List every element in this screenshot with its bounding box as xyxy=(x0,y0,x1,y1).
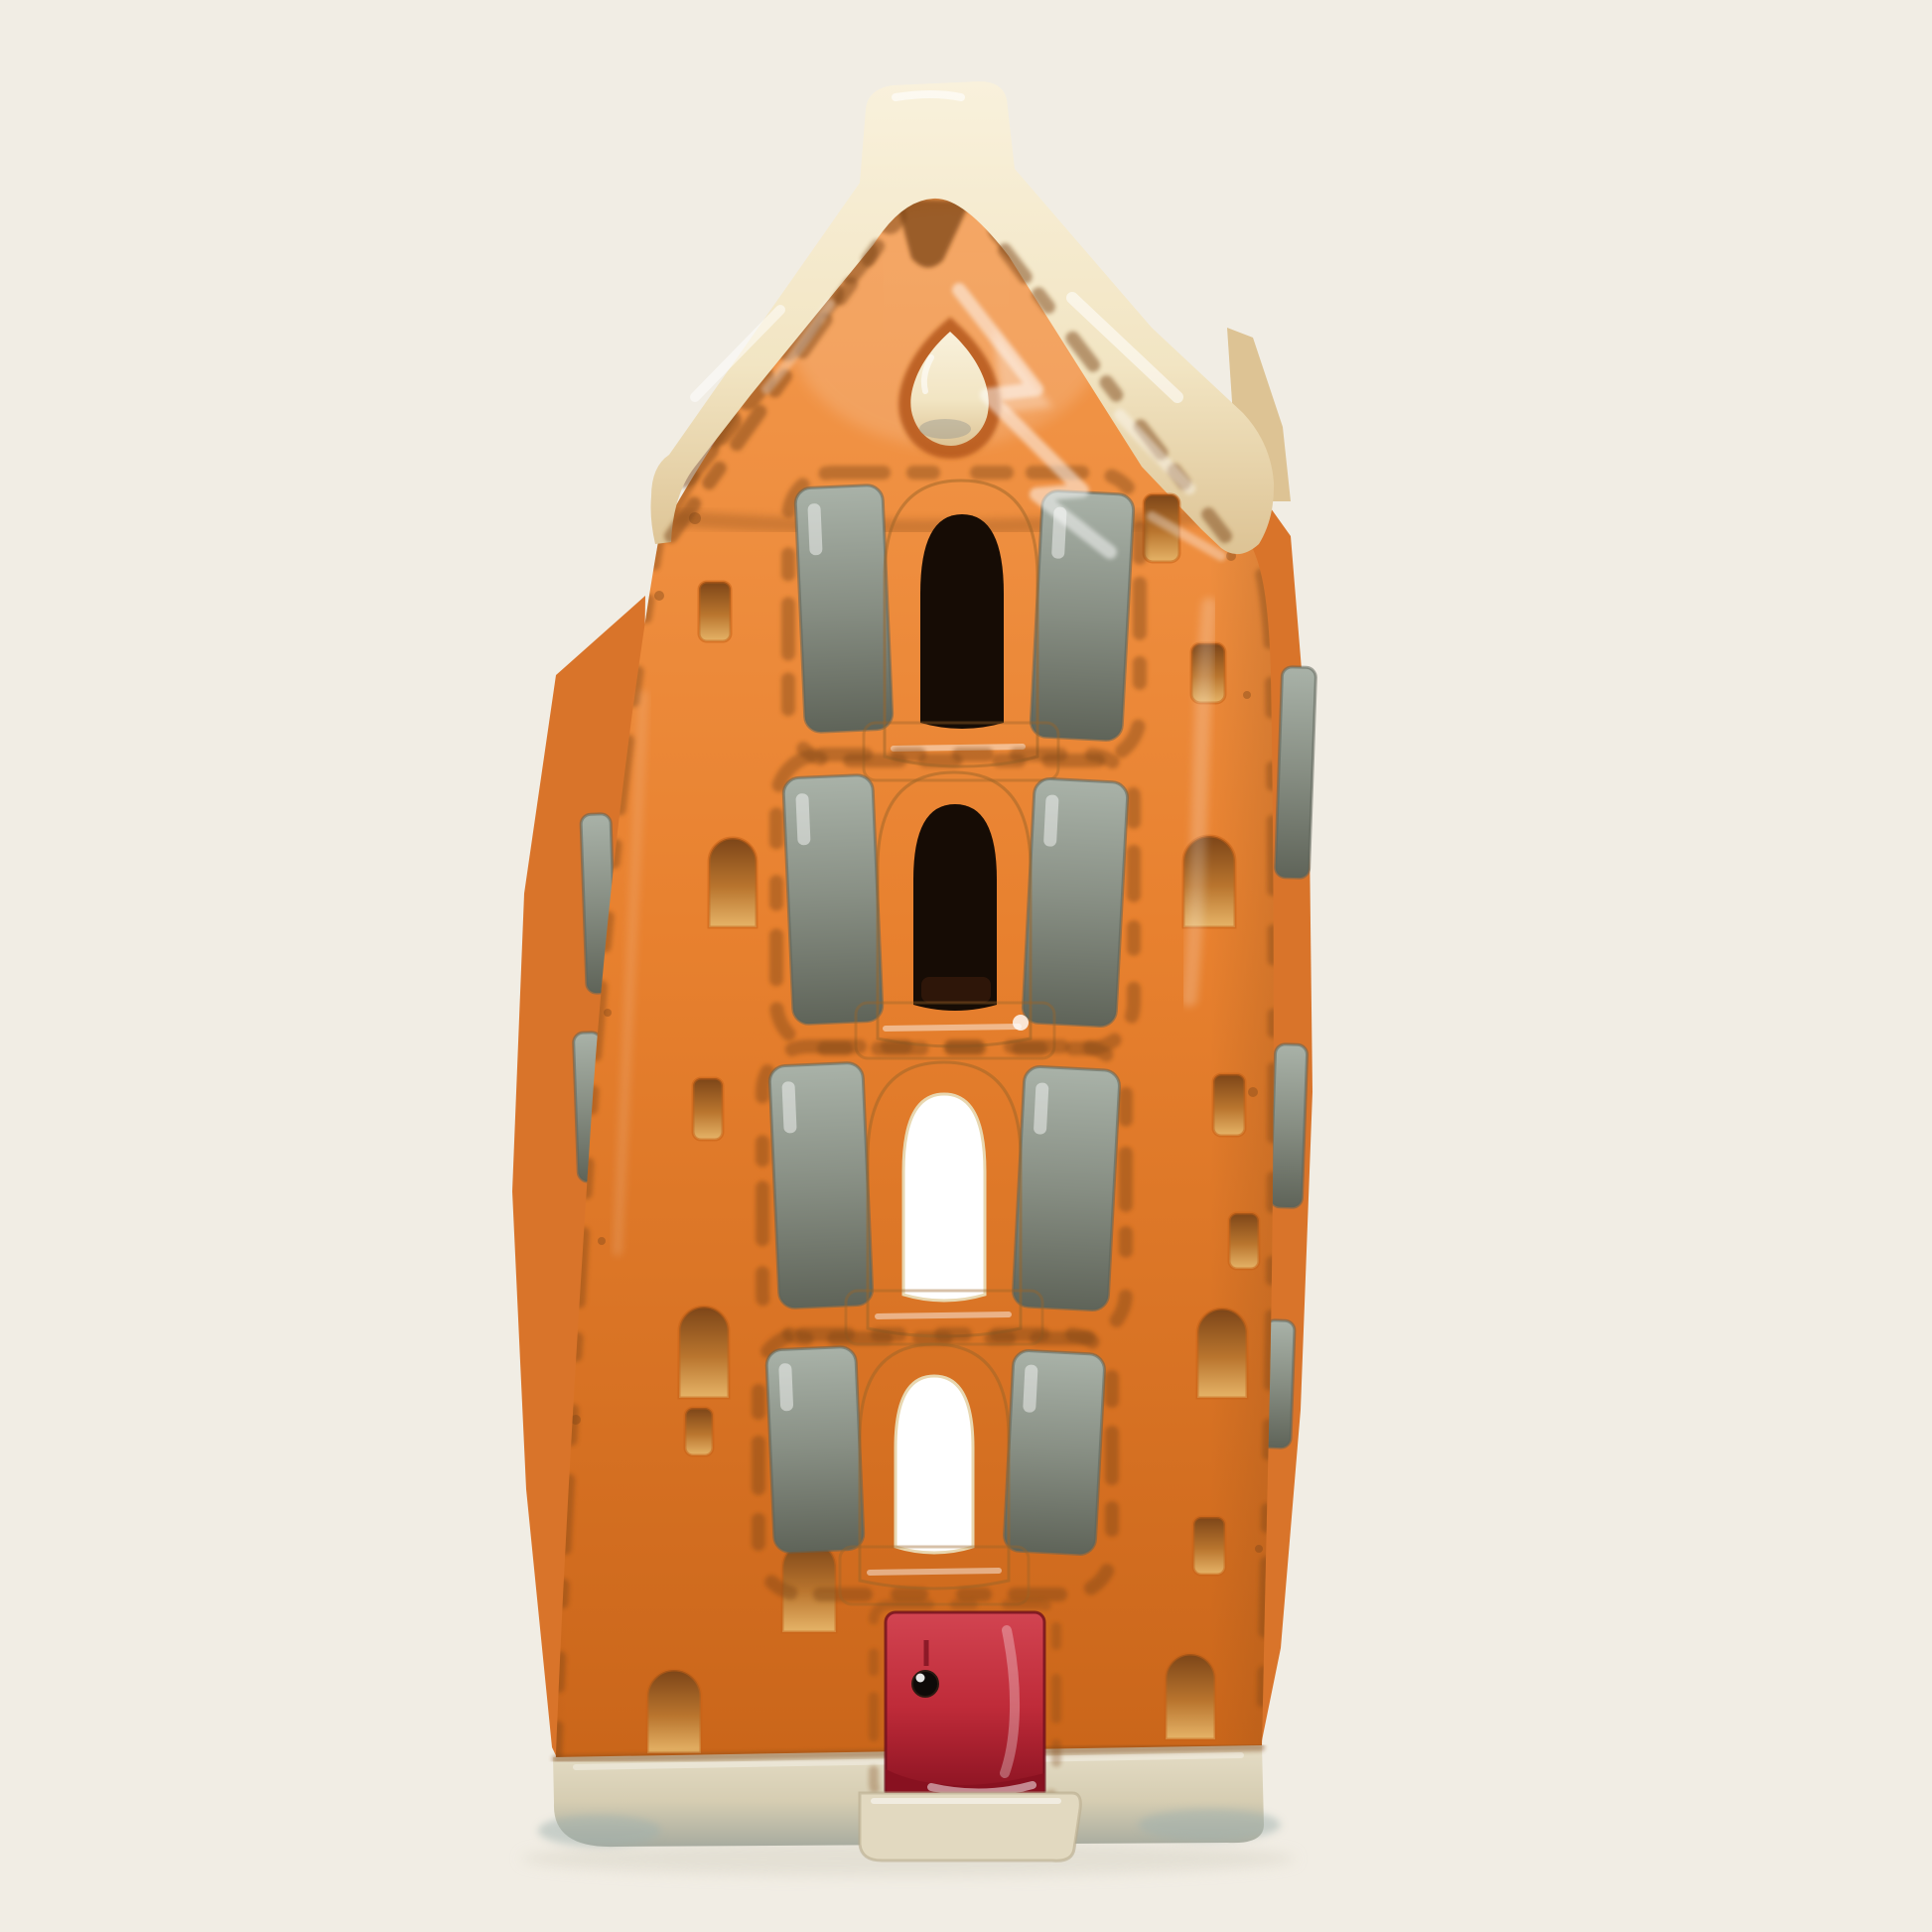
shutter-glint xyxy=(781,1081,796,1134)
impressed-window xyxy=(679,1307,729,1398)
side-shutter-right-2 xyxy=(1270,1043,1308,1207)
door-step xyxy=(860,1793,1080,1861)
impressed-window xyxy=(1229,1213,1259,1269)
impressed-window xyxy=(1213,1074,1245,1136)
impressed-window xyxy=(709,838,757,927)
shutter-glint xyxy=(1043,794,1059,847)
shutter-right xyxy=(1004,1350,1105,1556)
shutter-glint xyxy=(778,1363,793,1412)
impressed-window xyxy=(1197,1309,1247,1398)
impressed-window xyxy=(1193,1517,1225,1575)
sill-glint xyxy=(870,1571,999,1573)
impressed-window xyxy=(699,582,731,641)
door-knob xyxy=(912,1671,938,1697)
gable-window-smudge xyxy=(919,419,971,439)
sill-glint xyxy=(886,1027,1019,1029)
opening-reflection xyxy=(921,977,991,1003)
door-knob-specular xyxy=(916,1674,925,1683)
product-photo xyxy=(0,0,1932,1932)
ceramic-canal-house xyxy=(0,0,1932,1932)
trim-glint-knob xyxy=(896,94,961,97)
impressed-window xyxy=(693,1078,723,1140)
shutter-glint xyxy=(807,503,822,556)
impressed-window xyxy=(1166,1654,1215,1739)
sill-specular xyxy=(1013,1015,1029,1031)
shutter-left xyxy=(769,1062,874,1309)
side-shutter-right-1 xyxy=(1275,666,1315,878)
shutter-left xyxy=(766,1346,865,1553)
shutter-glint xyxy=(1023,1364,1037,1413)
shutter-right xyxy=(1013,1066,1121,1311)
shutter-glint xyxy=(795,793,810,846)
impressed-window xyxy=(647,1670,701,1753)
plinth-blue-tint-left xyxy=(538,1815,661,1847)
shutter-right xyxy=(1023,778,1129,1028)
impressed-window xyxy=(685,1408,713,1455)
window-opening xyxy=(920,514,1004,729)
sill-glint xyxy=(878,1314,1009,1316)
shutter-glint xyxy=(1034,1082,1049,1135)
door-panel xyxy=(886,1612,1044,1801)
shutter-left xyxy=(795,484,894,733)
plinth-blue-tint-right xyxy=(1138,1809,1281,1841)
shutter-left xyxy=(783,774,884,1025)
front-door xyxy=(874,1604,1056,1801)
window-opening xyxy=(903,1094,985,1301)
window-opening xyxy=(896,1376,973,1553)
